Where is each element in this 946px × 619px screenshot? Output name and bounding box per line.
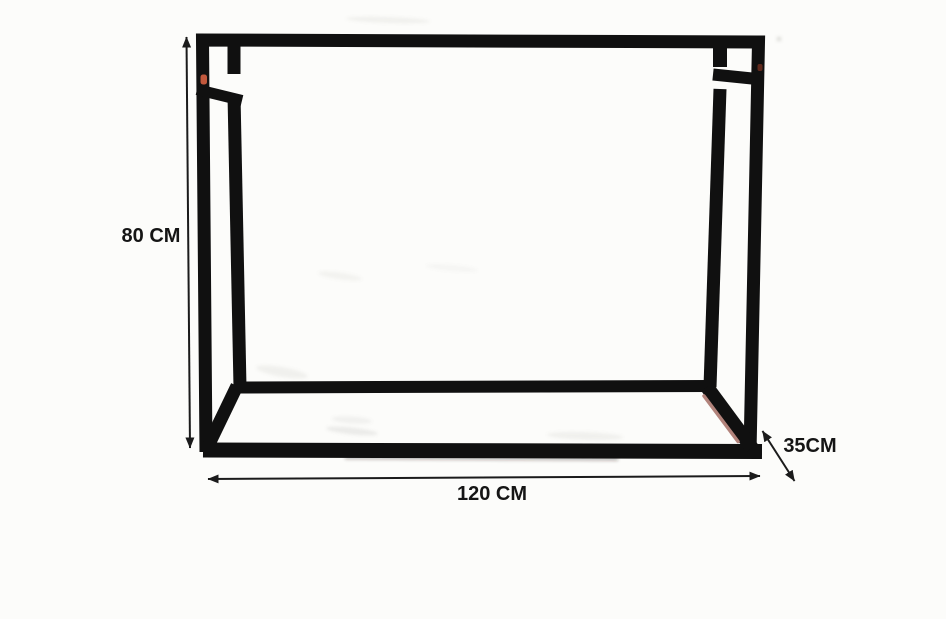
frame-drawing: 80 CM 120 CM 35CM — [0, 0, 946, 619]
frame-depth-rail-left — [209, 386, 237, 444]
frame-back-bottom-rail — [236, 386, 711, 388]
width-dimension-label: 120 CM — [457, 483, 527, 505]
height-dimension-label: 80 CM — [122, 225, 181, 247]
frame-structure — [197, 40, 762, 452]
weld-mark-left — [201, 75, 208, 85]
dimension-lines — [187, 37, 795, 481]
dimension-diagram: 80 CM 120 CM 35CM — [0, 0, 946, 619]
height-dimension-line — [187, 37, 191, 448]
depth-dimension-label: 35CM — [783, 435, 836, 457]
frame-bracket-foot-right — [713, 75, 752, 79]
dimension-labels: 80 CM 120 CM 35CM — [122, 225, 837, 505]
frame-back-post-right — [710, 89, 720, 387]
width-dimension-line — [208, 476, 760, 479]
frame-front-bottom-rail — [203, 450, 762, 452]
weld-mark-right — [758, 64, 763, 71]
frame-back-post-left — [234, 95, 240, 387]
